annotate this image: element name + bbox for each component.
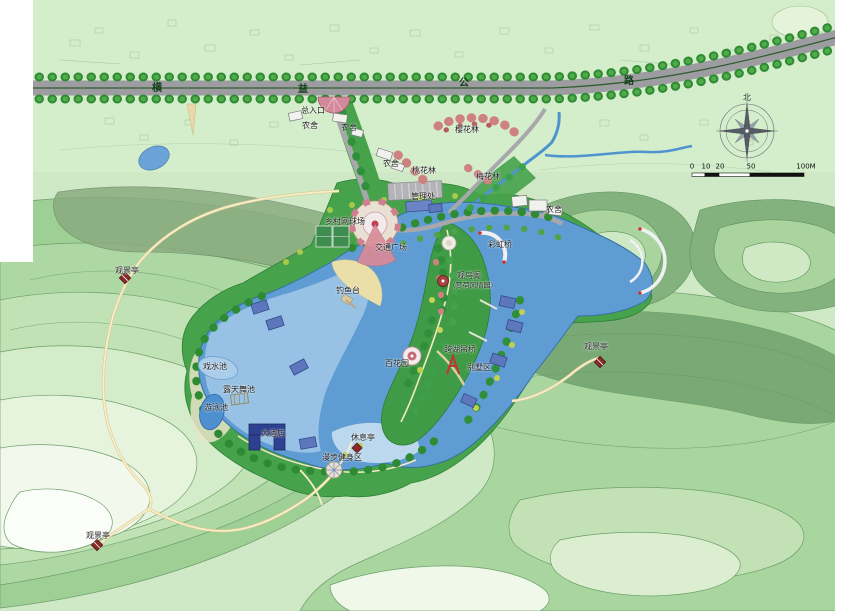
label-traffic-plaza: 交通广场	[375, 244, 407, 252]
label-entrance: 总入口	[301, 107, 325, 115]
label-farmhouse-a: 农舍	[302, 122, 318, 130]
scale-bar	[692, 173, 804, 177]
road-name-char-4: 路	[624, 77, 634, 88]
label-viewing-pavilion-w: 观景亭	[115, 267, 139, 275]
label-peach-grove: 桃花林	[412, 167, 436, 175]
label-farmhouse-c: 农舍	[383, 160, 399, 168]
road-name-char-1: 横	[152, 84, 162, 95]
site-plan-map: 横 益 公 路 总入口 农舍 农舍 农舍 农舍 樱花林 桃花林 梅花林 管理处 …	[0, 0, 864, 611]
admin-building	[406, 200, 433, 212]
scale-tick-0: 0	[690, 163, 694, 170]
road-name-char-3: 公	[459, 79, 469, 90]
label-farmhouse-d: 农舍	[546, 206, 562, 214]
label-swimming-pool: 游泳池	[204, 404, 228, 412]
label-bird-pavilion: 观鸟阁	[457, 272, 481, 280]
label-rainbow-bridge: 彩虹桥	[488, 241, 512, 249]
label-bird-pavilion-sub: （赏荷风情园）	[449, 282, 498, 289]
scale-tick-10: 10	[702, 163, 711, 170]
label-hotel: 大酒店	[261, 430, 285, 438]
scale-tick-50: 50	[747, 163, 756, 170]
label-suspension-bridge: 跨湖吊桥	[444, 346, 476, 354]
road-name-char-2: 益	[298, 85, 308, 96]
label-tennis-court: 乡村网球场	[325, 218, 365, 226]
compass-north-label: 北	[743, 94, 751, 102]
fitness-plaza	[326, 462, 342, 478]
map-drawing	[0, 0, 864, 611]
scale-tick-20: 20	[716, 163, 725, 170]
label-viewing-pavilion-sw: 观景亭	[86, 532, 110, 540]
label-water-play-pool: 戏水池	[203, 363, 227, 371]
margin-right	[835, 0, 864, 611]
label-plum-grove: 梅花林	[476, 173, 500, 181]
farmhouse-b	[333, 113, 348, 123]
label-villa-area: 别墅区	[467, 364, 491, 372]
scale-tick-100: 100M	[796, 163, 815, 170]
label-flower-terrace: 百花园	[385, 360, 409, 368]
margin-left	[0, 0, 33, 262]
label-farmhouse-b: 农舍	[341, 124, 357, 132]
label-admin-office: 管理处	[411, 193, 435, 201]
label-viewing-pavilion-e: 观景亭	[584, 343, 608, 351]
label-fitness-trail: 漫步健身区	[322, 454, 362, 462]
label-fishing-platform: 钓鱼台	[336, 287, 360, 295]
label-rest-pavilion: 休息亭	[351, 434, 375, 442]
label-cherry-grove: 樱花林	[455, 126, 479, 134]
label-open-air-dance: 露天舞池	[223, 386, 255, 394]
farmhouse-d	[512, 195, 528, 207]
